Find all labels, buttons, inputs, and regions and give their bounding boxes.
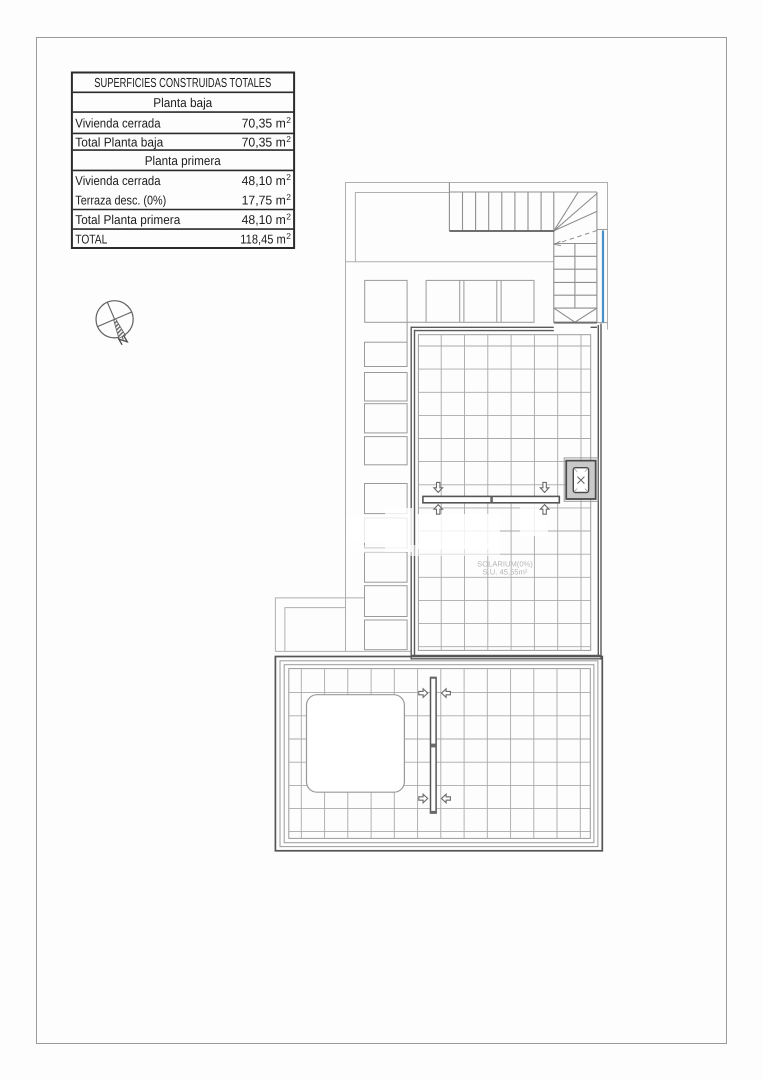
svg-text:S.U. 45,55m²: S.U. 45,55m² bbox=[483, 568, 528, 577]
svg-text:Total Planta baja: Total Planta baja bbox=[75, 135, 164, 150]
svg-text:Planta baja: Planta baja bbox=[153, 95, 213, 110]
svg-text:2: 2 bbox=[286, 192, 291, 202]
svg-text:2: 2 bbox=[286, 211, 291, 221]
svg-text:17,75 m: 17,75 m bbox=[242, 193, 286, 208]
svg-text:48,10 m: 48,10 m bbox=[242, 173, 286, 188]
svg-text:Total Planta primera: Total Planta primera bbox=[75, 212, 181, 227]
svg-text:2: 2 bbox=[286, 172, 291, 182]
svg-text:Planta primera: Planta primera bbox=[145, 153, 222, 168]
svg-text:2: 2 bbox=[286, 134, 291, 144]
svg-text:SUPERFICIES CONSTRUIDAS TOTALE: SUPERFICIES CONSTRUIDAS TOTALES bbox=[94, 75, 271, 90]
svg-text:Vivienda cerrada: Vivienda cerrada bbox=[75, 116, 161, 131]
svg-text:2: 2 bbox=[286, 231, 291, 241]
svg-text:2: 2 bbox=[286, 115, 291, 125]
svg-text:70,35 m: 70,35 m bbox=[242, 116, 286, 131]
svg-text:118,45 m: 118,45 m bbox=[240, 232, 286, 247]
svg-text:70,35 m: 70,35 m bbox=[242, 135, 286, 150]
svg-text:Vivienda cerrada: Vivienda cerrada bbox=[75, 173, 161, 188]
svg-text:Terraza desc. (0%): Terraza desc. (0%) bbox=[75, 193, 166, 208]
svg-text:48,10 m: 48,10 m bbox=[242, 212, 286, 227]
svg-text:TOTAL: TOTAL bbox=[75, 232, 107, 247]
